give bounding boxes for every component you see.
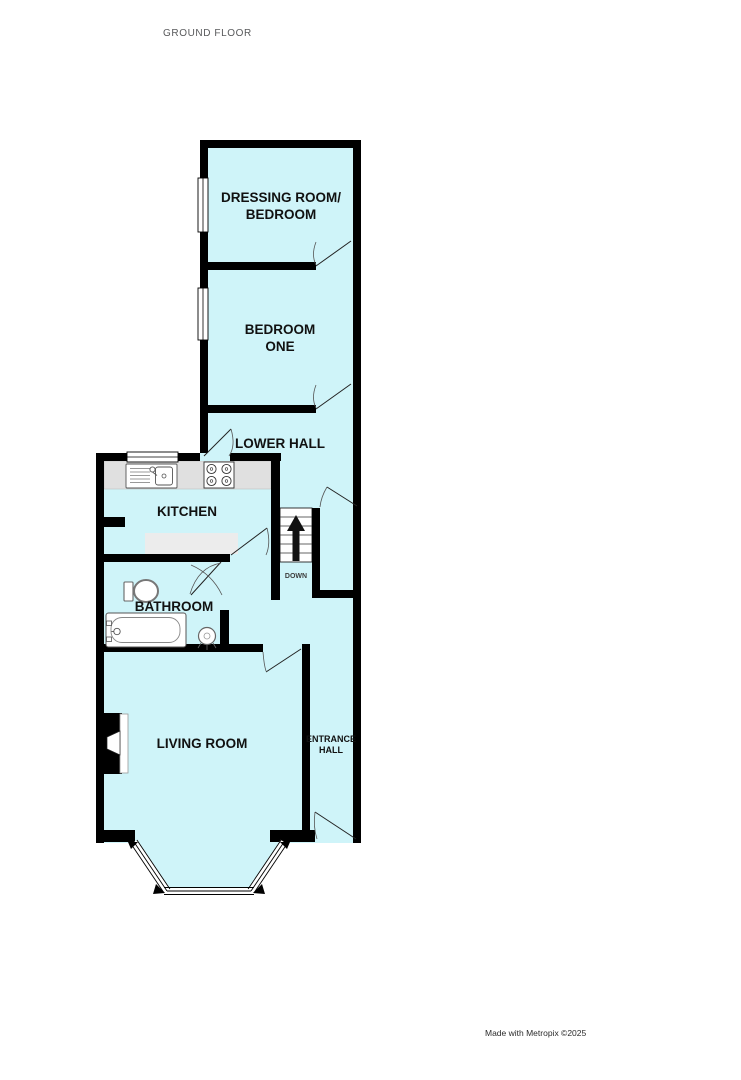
staircase [280, 508, 312, 562]
window-bedroom-one [198, 288, 208, 340]
label-living-room: LIVING ROOM [157, 736, 248, 751]
label-bathroom: BATHROOM [135, 599, 214, 614]
kitchen-base-unit [145, 533, 238, 555]
floor-plan-page: GROUND FLOOR DRESSING ROOM/ BEDROOM BEDR… [0, 0, 741, 1080]
bathtub [106, 613, 186, 647]
wall-kitchen-top [96, 453, 281, 461]
kitchen-hob [204, 462, 234, 488]
wall-bedroom-divider [200, 405, 316, 413]
wall-bottom-right-stub [270, 830, 315, 842]
label-bedroom-one-line1: BEDROOM [245, 322, 316, 337]
wall-stair-left [271, 453, 280, 600]
window-kitchen [127, 452, 178, 462]
wall-top [200, 140, 361, 148]
room-fills [96, 140, 361, 893]
wall-dressing-divider [204, 262, 316, 270]
credit-line: Made with Metropix ©2025 [485, 1028, 587, 1038]
label-stairs-down: DOWN [285, 573, 307, 580]
wall-bottom-left-stub [96, 830, 135, 842]
wall-bathroom-right [220, 610, 229, 648]
label-dressing-room-line2: BEDROOM [246, 207, 317, 222]
kitchen-sink [126, 464, 177, 488]
floor-plan: GROUND FLOOR DRESSING ROOM/ BEDROOM BEDR… [0, 0, 741, 1080]
label-bedroom-one-line2: ONE [265, 339, 294, 354]
label-kitchen: KITCHEN [157, 504, 217, 519]
label-lower-hall: LOWER HALL [235, 436, 325, 451]
wall-stair-right [312, 508, 320, 598]
wall-kitchen-bottom [104, 554, 230, 562]
windows [127, 178, 208, 462]
label-entrance-hall-line2: HALL [319, 745, 343, 755]
floor-title: GROUND FLOOR [163, 28, 252, 39]
wall-front-door-stub [353, 830, 361, 843]
label-dressing-room-line1: DRESSING ROOM/ [221, 190, 341, 205]
wall-corridor-bottom [312, 590, 361, 598]
wall-kitchen-left-stub [96, 517, 125, 527]
label-entrance-hall-line1: ENTRANCE [306, 734, 356, 744]
window-dressing-room [198, 178, 208, 232]
